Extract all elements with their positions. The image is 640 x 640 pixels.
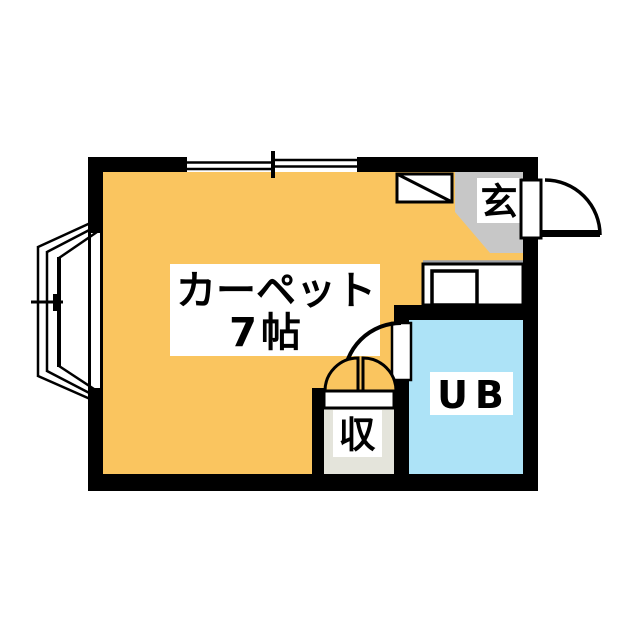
carpet-room-size-label: 7帖 (229, 310, 305, 356)
shoe-cabinet (397, 174, 452, 202)
entrance-door-arc (545, 180, 600, 235)
wall-storage-left (312, 388, 324, 474)
entrance-door (521, 180, 600, 238)
floor-plan-canvas: カーペット 7帖 玄 UB (0, 0, 640, 640)
wall-kitchen-ub (394, 305, 538, 320)
entrance-door-leaf (541, 230, 600, 237)
genkan-label: 玄 (481, 181, 518, 224)
storage-label: 収 (339, 414, 376, 457)
entrance-opening (521, 180, 541, 238)
ub-door-opening (392, 323, 411, 380)
closet-threshold (324, 391, 394, 408)
kitchen-sink (432, 271, 477, 305)
floor-plan-svg: カーペット 7帖 玄 UB (0, 0, 640, 640)
carpet-room-label: カーペット (176, 268, 376, 314)
bay-window (31, 220, 103, 402)
unit-bath-label: UB (437, 373, 511, 417)
